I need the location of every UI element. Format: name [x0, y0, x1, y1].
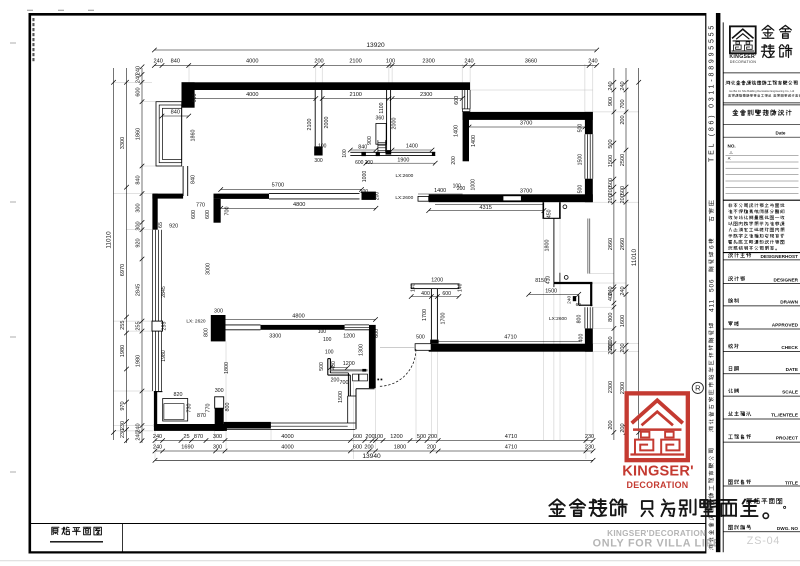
svg-text:200: 200 [427, 444, 436, 450]
svg-text:200: 200 [428, 434, 437, 440]
svg-text:1860: 1860 [191, 130, 197, 142]
svg-text:200: 200 [451, 156, 457, 165]
svg-text:100: 100 [318, 329, 327, 335]
svg-text:700: 700 [340, 380, 349, 386]
svg-text:Date: Date [776, 131, 786, 136]
svg-text:4000: 4000 [281, 434, 293, 440]
svg-text:200: 200 [608, 194, 614, 203]
svg-text:2100: 2100 [307, 119, 313, 131]
svg-text:He Bei Jin She Building Decora: He Bei Jin She Building Decoration Engin… [729, 89, 794, 93]
svg-text:400: 400 [578, 334, 584, 343]
svg-text:800: 800 [203, 328, 209, 337]
svg-text:300: 300 [214, 309, 223, 315]
svg-text:200: 200 [365, 160, 374, 166]
svg-text:300: 300 [213, 434, 222, 440]
svg-text:2500: 2500 [620, 154, 626, 166]
svg-text:140: 140 [457, 283, 463, 292]
svg-text:770: 770 [206, 404, 212, 413]
svg-text:LX:2600: LX:2600 [395, 173, 413, 179]
svg-text:920: 920 [169, 224, 178, 230]
svg-text:200: 200 [608, 420, 614, 429]
svg-text:300: 300 [213, 444, 222, 450]
svg-text:200: 200 [620, 194, 626, 203]
svg-text:820: 820 [174, 392, 183, 398]
svg-text:3660: 3660 [525, 58, 537, 64]
svg-text:2845: 2845 [161, 286, 167, 298]
svg-text:500: 500 [578, 124, 584, 133]
svg-text:6: 6 [709, 245, 716, 249]
svg-text:1400: 1400 [406, 144, 418, 150]
svg-text:APPROVED: APPROVED [772, 322, 799, 327]
svg-text:2660: 2660 [608, 238, 614, 250]
svg-text:840: 840 [171, 110, 180, 116]
svg-text:65: 65 [158, 222, 164, 228]
svg-text:1200: 1200 [431, 278, 443, 284]
svg-text:3300: 3300 [120, 137, 126, 149]
svg-text:DECORATION: DECORATION [627, 480, 689, 490]
svg-text:600: 600 [192, 94, 198, 103]
svg-text:411: 411 [709, 299, 716, 312]
svg-text:600: 600 [442, 291, 451, 297]
svg-text:230: 230 [120, 421, 126, 430]
svg-text:SCALE: SCALE [782, 390, 798, 395]
svg-text:1800: 1800 [224, 362, 230, 374]
svg-text:920: 920 [136, 238, 142, 247]
svg-text:100: 100 [342, 149, 348, 158]
svg-text:6970: 6970 [120, 264, 126, 276]
svg-text:100: 100 [374, 434, 383, 440]
svg-text:1500: 1500 [608, 155, 614, 167]
svg-text:4000: 4000 [281, 444, 293, 450]
svg-text:1600: 1600 [620, 315, 626, 327]
svg-text:600: 600 [454, 96, 460, 105]
svg-text:700: 700 [620, 99, 626, 108]
svg-text:2300: 2300 [422, 58, 434, 64]
svg-text:500: 500 [620, 186, 626, 195]
svg-text:1400: 1400 [434, 188, 446, 194]
svg-text:TITLE: TITLE [785, 481, 798, 486]
svg-text:506: 506 [709, 279, 716, 292]
svg-text:4710: 4710 [505, 434, 517, 440]
svg-text:2100: 2100 [349, 58, 361, 64]
svg-text:4000: 4000 [246, 92, 258, 98]
svg-text:240: 240 [620, 286, 626, 295]
svg-text:900: 900 [608, 97, 614, 106]
svg-text:700: 700 [225, 207, 231, 216]
svg-text:CHECK: CHECK [781, 345, 798, 350]
svg-text:1980: 1980 [136, 355, 142, 367]
svg-text:200: 200 [331, 377, 340, 383]
svg-text:400: 400 [331, 361, 337, 370]
svg-text:240: 240 [567, 295, 573, 303]
svg-text:500: 500 [578, 185, 584, 194]
svg-text:870: 870 [194, 434, 203, 440]
svg-text:3000: 3000 [206, 263, 212, 275]
svg-text:840: 840 [136, 175, 142, 184]
svg-text:100: 100 [386, 58, 395, 64]
svg-text:2000: 2000 [392, 118, 398, 130]
svg-text:255: 255 [120, 321, 126, 330]
svg-text:1500: 1500 [338, 391, 344, 403]
svg-text:4315: 4315 [479, 205, 491, 211]
svg-text:240: 240 [153, 434, 162, 440]
svg-text:LX:2600: LX:2600 [395, 195, 413, 201]
svg-text:2000: 2000 [324, 117, 330, 129]
svg-text:11010: 11010 [631, 249, 638, 267]
svg-text:NO.: NO. [728, 144, 736, 149]
svg-text:R: R [695, 384, 701, 393]
svg-text:500: 500 [417, 434, 426, 440]
svg-text:900: 900 [367, 136, 373, 145]
svg-text:240: 240 [136, 74, 142, 83]
svg-text:4800: 4800 [293, 202, 305, 208]
svg-text:DESIGNERHOST: DESIGNERHOST [760, 254, 798, 259]
svg-text:PROJECT: PROJECT [776, 435, 798, 440]
svg-text:3300: 3300 [269, 334, 281, 340]
svg-text:1300: 1300 [358, 344, 364, 356]
svg-text:1400: 1400 [471, 135, 477, 147]
svg-text:100: 100 [360, 189, 369, 195]
svg-text:600: 600 [353, 434, 362, 440]
svg-text:1690: 1690 [181, 444, 193, 450]
svg-text:840: 840 [191, 175, 197, 184]
svg-text:25: 25 [183, 434, 189, 440]
svg-text:140: 140 [411, 283, 417, 292]
svg-text:600: 600 [205, 210, 211, 219]
svg-text:ZS-04: ZS-04 [747, 535, 780, 547]
svg-text:ONLY FOR VILLA LIFE: ONLY FOR VILLA LIFE [593, 537, 721, 549]
svg-text:1860: 1860 [136, 128, 142, 140]
svg-text:300: 300 [215, 388, 224, 394]
svg-text:1200: 1200 [390, 434, 402, 440]
svg-text:TEL (86) 0311-88995555: TEL (86) 0311-88995555 [709, 23, 716, 162]
svg-text:240: 240 [620, 81, 626, 90]
svg-text:200: 200 [620, 343, 626, 352]
svg-text:DESIGNER: DESIGNER [774, 277, 799, 282]
svg-text:240: 240 [588, 58, 597, 64]
svg-text:730: 730 [187, 404, 193, 413]
svg-text:60: 60 [576, 302, 582, 308]
svg-text:2300: 2300 [608, 381, 614, 393]
svg-text:2100: 2100 [349, 92, 361, 98]
svg-text:300: 300 [136, 221, 142, 230]
svg-text:200: 200 [608, 345, 614, 354]
svg-text:300: 300 [136, 203, 142, 212]
svg-text:2845: 2845 [136, 284, 142, 296]
svg-text:200: 200 [375, 192, 381, 201]
svg-text:1500: 1500 [545, 288, 557, 294]
svg-text:2660: 2660 [620, 238, 626, 250]
svg-text:240: 240 [608, 81, 614, 90]
svg-text:1100: 1100 [379, 102, 385, 113]
svg-text:200: 200 [314, 58, 323, 64]
svg-text:240: 240 [136, 423, 142, 432]
svg-text:840: 840 [171, 58, 180, 64]
svg-text:5700: 5700 [272, 183, 284, 189]
svg-text:TL.IENTELE: TL.IENTELE [771, 412, 798, 417]
svg-text:600: 600 [191, 210, 197, 219]
svg-text:4000: 4000 [246, 58, 258, 64]
svg-text:300: 300 [314, 158, 323, 164]
svg-text:1800: 1800 [394, 444, 406, 450]
svg-text:DECORATION: DECORATION [730, 60, 757, 64]
svg-text:970: 970 [120, 401, 126, 410]
svg-text:4710: 4710 [504, 335, 516, 341]
svg-text:500: 500 [416, 335, 425, 341]
svg-text:4710: 4710 [505, 444, 517, 450]
svg-text:4800: 4800 [292, 313, 304, 319]
svg-text:600: 600 [374, 329, 380, 338]
svg-text:DWG. NO: DWG. NO [777, 526, 798, 531]
svg-text:1000: 1000 [362, 171, 368, 183]
svg-text:1980: 1980 [120, 345, 126, 357]
svg-text:1700: 1700 [422, 309, 428, 321]
svg-text:1980: 1980 [161, 350, 167, 362]
svg-text:400: 400 [608, 292, 614, 301]
svg-text:1900: 1900 [397, 157, 409, 163]
svg-text:400: 400 [421, 291, 430, 297]
svg-text:100: 100 [318, 144, 327, 150]
svg-text:600: 600 [136, 87, 142, 96]
svg-text:230: 230 [585, 444, 594, 450]
svg-text:11010: 11010 [106, 231, 113, 249]
svg-text:240: 240 [154, 58, 163, 64]
svg-text:410: 410 [546, 276, 552, 285]
svg-text:DRAWN: DRAWN [780, 299, 798, 304]
svg-text:450: 450 [547, 209, 553, 218]
svg-text:KINGSER': KINGSER' [622, 464, 694, 480]
svg-text:500: 500 [608, 178, 614, 187]
svg-text:100: 100 [323, 337, 332, 343]
svg-text:1700: 1700 [441, 313, 447, 325]
svg-text:500: 500 [608, 139, 614, 148]
svg-text:200: 200 [620, 115, 626, 124]
svg-text:2300: 2300 [420, 92, 432, 98]
svg-text:LX: 2620: LX: 2620 [186, 319, 206, 325]
svg-text:3700: 3700 [520, 121, 532, 127]
svg-text:DATE: DATE [786, 367, 798, 372]
svg-text:255: 255 [162, 322, 168, 331]
svg-text:1800: 1800 [544, 240, 550, 252]
svg-text:3700: 3700 [520, 189, 532, 195]
svg-text:1000: 1000 [470, 179, 476, 191]
svg-text:240: 240 [136, 431, 142, 440]
svg-text:13920: 13920 [366, 42, 385, 49]
svg-text:600: 600 [353, 444, 362, 450]
svg-text:1200: 1200 [343, 334, 355, 340]
svg-text:1400: 1400 [453, 125, 459, 137]
svg-text:800: 800 [225, 403, 231, 412]
svg-text:800: 800 [608, 313, 614, 322]
svg-text:770: 770 [196, 203, 205, 209]
svg-text:200: 200 [608, 186, 614, 195]
svg-text:240: 240 [153, 444, 162, 450]
svg-text:200: 200 [457, 186, 466, 192]
svg-text:800: 800 [576, 315, 582, 324]
svg-text:600: 600 [355, 160, 364, 166]
svg-text:13940: 13940 [362, 453, 381, 460]
svg-text:1500: 1500 [578, 154, 584, 166]
svg-text:100: 100 [325, 350, 334, 356]
svg-text:200: 200 [364, 444, 373, 450]
svg-text:LX:2600: LX:2600 [549, 316, 567, 322]
svg-text:360: 360 [375, 116, 384, 122]
svg-text:A:: A: [728, 157, 732, 161]
svg-text:240: 240 [464, 58, 473, 64]
svg-text:255: 255 [136, 321, 142, 330]
svg-text:870: 870 [197, 413, 206, 419]
svg-text:230: 230 [120, 429, 126, 438]
svg-text:230: 230 [585, 434, 594, 440]
svg-text:500: 500 [319, 362, 325, 371]
